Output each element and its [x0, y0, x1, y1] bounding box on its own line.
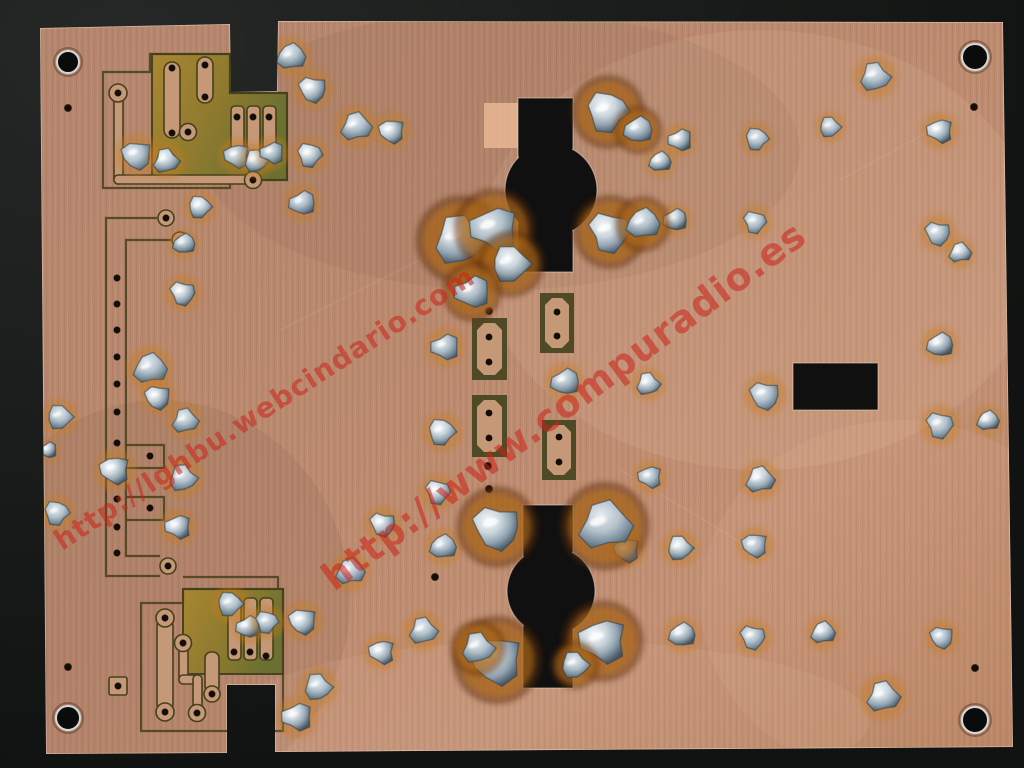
drill-hole	[114, 327, 120, 333]
copper-trace	[164, 62, 180, 138]
drill-hole	[486, 410, 493, 417]
drill-hole	[114, 381, 120, 387]
drill-hole	[114, 409, 120, 415]
drill-hole	[169, 130, 175, 136]
drill-hole	[65, 664, 72, 671]
drill-hole	[209, 691, 215, 697]
drill-hole	[194, 710, 200, 716]
drill-hole	[169, 65, 175, 71]
drill-hole	[486, 359, 493, 366]
drill-hole	[162, 709, 168, 715]
drill-hole	[263, 653, 269, 659]
drill-hole	[231, 649, 237, 655]
drill-hole	[234, 114, 240, 120]
mounting-hole	[57, 51, 79, 73]
drill-hole	[114, 354, 120, 360]
drill-hole	[247, 649, 253, 655]
drill-hole	[147, 505, 153, 511]
cutout-rect-right	[793, 363, 878, 410]
mounting-hole	[56, 706, 80, 730]
drill-hole	[147, 453, 153, 459]
drill-hole	[163, 215, 169, 221]
drill-hole	[250, 114, 256, 120]
drill-hole	[114, 440, 120, 446]
drill-hole	[162, 615, 168, 621]
drill-hole	[554, 333, 561, 340]
drill-hole	[114, 550, 120, 556]
octagon-pad	[477, 323, 502, 375]
drill-hole	[114, 275, 120, 281]
mounting-hole	[962, 707, 988, 733]
copper-bright-patch	[484, 103, 521, 148]
drill-hole	[556, 459, 563, 466]
pcb-art	[0, 0, 1024, 768]
drill-hole	[185, 129, 191, 135]
drill-hole	[432, 574, 439, 581]
drill-hole	[266, 114, 272, 120]
copper-trace	[157, 618, 173, 712]
octagon-pad	[545, 298, 569, 348]
drill-hole	[115, 683, 121, 689]
drill-hole	[180, 640, 186, 646]
mounting-hole	[962, 44, 988, 70]
pcb-board	[0, 10, 1024, 768]
drill-hole	[972, 665, 979, 672]
drill-hole	[971, 104, 978, 111]
drill-hole	[65, 105, 72, 112]
drill-hole	[115, 90, 121, 96]
drill-hole	[554, 309, 561, 316]
drill-hole	[114, 301, 120, 307]
drill-hole	[202, 94, 208, 100]
drill-hole	[486, 334, 493, 341]
drill-hole	[165, 563, 171, 569]
drill-hole	[202, 62, 208, 68]
pcb-photo: http://lghbu.webcindario.com http://www.…	[0, 0, 1024, 768]
pcb-board-photo: http://lghbu.webcindario.com http://www.…	[0, 0, 1024, 768]
